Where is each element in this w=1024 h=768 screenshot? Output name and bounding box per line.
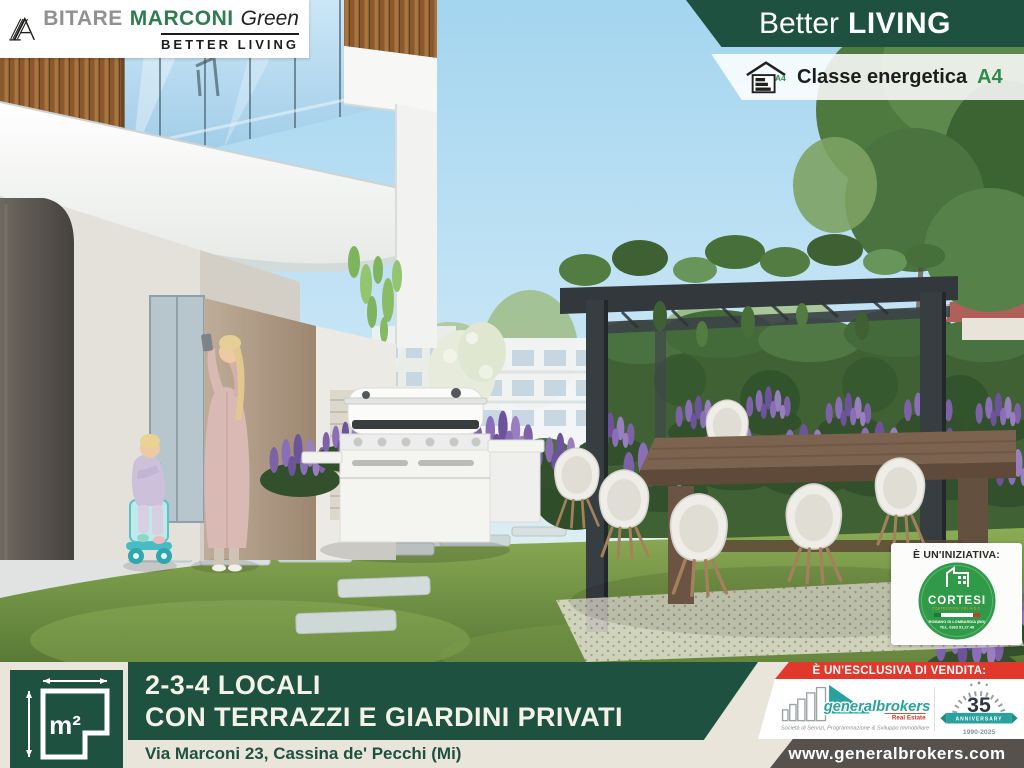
website-url: www.generalbrokers.com: [788, 744, 1005, 764]
better-living-banner: Better LIVING: [686, 0, 1024, 47]
anniversary-label: ANNIVERSARY: [956, 717, 1003, 723]
brand-word-green: Green: [241, 7, 299, 31]
website-bar: www.generalbrokers.com: [770, 739, 1024, 768]
energy-class-value: A4: [977, 66, 1003, 89]
energy-class-label: Classe energetica: [797, 66, 967, 89]
cortesi-name: CORTESI: [927, 595, 985, 607]
exclusive-heading: È UN'ESCLUSIVA DI VENDITA:: [813, 665, 987, 677]
anniversary-badge: 35 ANNIVERSARY 1990-2025: [938, 680, 1020, 738]
anniversary-years: 1990-2025: [963, 729, 996, 736]
agency-name: generalbrokers: [823, 699, 931, 715]
generalbrokers-logo: generalbrokers Real Estate Società di Se…: [779, 681, 931, 737]
energy-icon-tag: A4: [775, 73, 786, 83]
title-line-2: CON TERRAZZI E GIARDINI PRIVATI: [145, 701, 758, 733]
initiative-card: È UN'INIZIATIVA: CORTESI COSTRUZIONI SRL…: [891, 543, 1022, 645]
agency-tagline: Società di Servizi, Programmazione & Svi…: [781, 726, 929, 732]
panel-divider: [934, 687, 935, 731]
tricolor-bar: [934, 613, 980, 617]
brand-word-marconi: MARCONI: [130, 7, 234, 31]
brand-word-abitare: BITARE: [43, 7, 123, 31]
exclusive-banner: È UN'ESCLUSIVA DI VENDITA:: [775, 662, 1024, 679]
energy-house-icon: A4: [745, 59, 787, 95]
title-banner: 2-3-4 LOCALI CON TERRAZZI E GIARDINI PRI…: [128, 662, 758, 740]
title-line-1: 2-3-4 LOCALI: [145, 669, 758, 701]
agency-sub: Real Estate: [892, 715, 926, 722]
cortesi-subtitle: COSTRUZIONI SRL A S.C.: [932, 607, 982, 611]
brand-logo-text: BITARE MARCONI Green BETTER LIVING: [43, 7, 299, 52]
brand-subtitle: BETTER LIVING: [161, 33, 299, 52]
brand-logo: BITARE MARCONI Green BETTER LIVING: [0, 0, 309, 58]
address-line: Via Marconi 23, Cassina de' Pecchi (Mi): [145, 744, 461, 764]
banner-word-better: Better: [759, 7, 839, 41]
initiative-heading: È UN'INIZIATIVA:: [913, 549, 1000, 561]
agency-panel: generalbrokers Real Estate Società di Se…: [757, 679, 1024, 739]
energy-class-strip: A4 Classe energetica A4: [705, 54, 1024, 100]
abitare-a-glyph-icon: [8, 4, 35, 54]
footer-band: m² 2-3-4 LOCALI CON TERRAZZI E GIARDINI …: [0, 662, 1024, 768]
cortesi-city: ROMANO DI LOMBARDIA (BG): [928, 619, 986, 624]
square-meters-box: m²: [10, 670, 123, 768]
real-estate-flyer: BITARE MARCONI Green BETTER LIVING Bette…: [0, 0, 1024, 768]
banner-word-living: LIVING: [848, 7, 951, 41]
floorplan-m2-icon: m²: [19, 675, 115, 763]
m2-label: m²: [49, 710, 81, 740]
cortesi-logo: CORTESI COSTRUZIONI SRL A S.C. ROMANO DI…: [917, 561, 997, 641]
cortesi-phone: TEL. 0363 91.27.49: [939, 625, 974, 630]
